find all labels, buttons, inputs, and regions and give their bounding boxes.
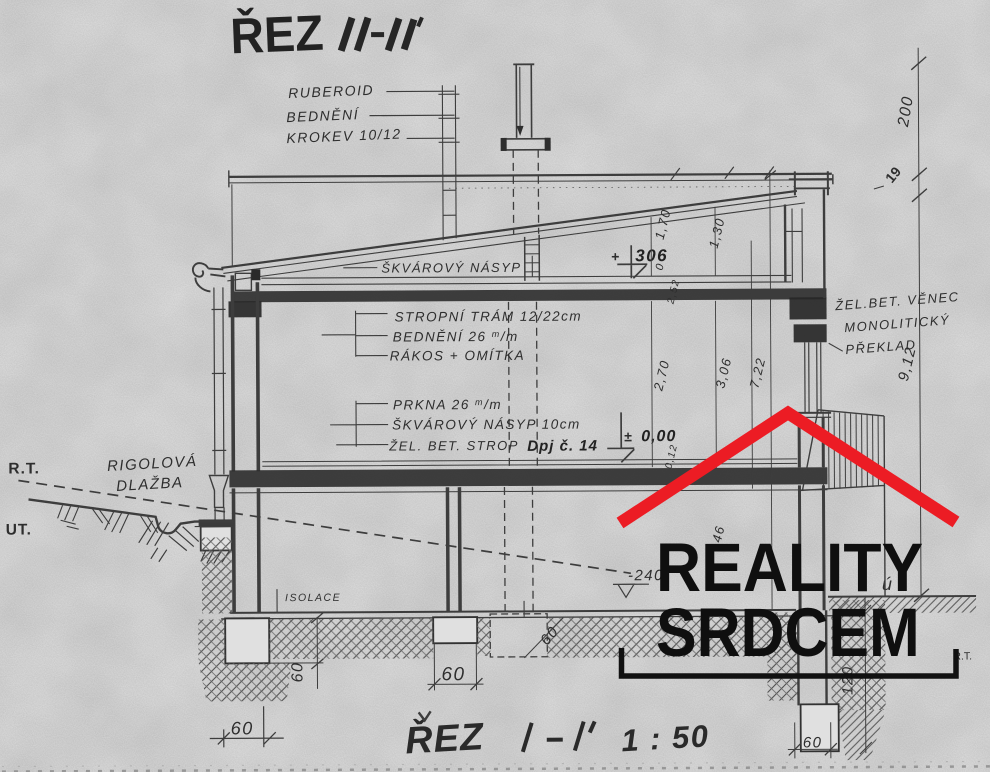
svg-text:ŠKVÁROVÝ NÁSYP: ŠKVÁROVÝ NÁSYP	[381, 260, 521, 276]
svg-text:ŘEZ: ŘEZ	[404, 714, 486, 763]
svg-text:60: 60	[231, 718, 254, 738]
svg-text:±: ±	[624, 428, 632, 444]
svg-text:60: 60	[289, 662, 306, 683]
svg-text:60: 60	[441, 664, 465, 685]
svg-text:STROPNÍ TRÁM 12/22cm: STROPNÍ TRÁM 12/22cm	[395, 309, 583, 325]
svg-text:+: +	[611, 248, 619, 264]
svg-text:Dpj č. 14: Dpj č. 14	[527, 437, 598, 454]
svg-text:ŠKVÁROVÝ NÁSYP 10cm: ŠKVÁROVÝ NÁSYP 10cm	[392, 417, 581, 433]
svg-text:1 : 50: 1 : 50	[620, 718, 710, 758]
svg-text:0,00: 0,00	[641, 428, 676, 445]
svg-text:R.T.: R.T.	[8, 460, 40, 477]
svg-text:ISOLACE: ISOLACE	[285, 592, 341, 604]
svg-text:UT.: UT.	[6, 521, 32, 538]
svg-text:RÁKOS + OMÍTKA: RÁKOS + OMÍTKA	[390, 348, 525, 364]
svg-text:BEDNĚNÍ 26 m/m: BEDNĚNÍ 26 m/m	[393, 329, 519, 345]
svg-text:PRKNA 26 m/m: PRKNA 26 m/m	[393, 397, 502, 413]
svg-text:BEDNĚNÍ: BEDNĚNÍ	[286, 106, 360, 125]
svg-text:ŽEL. BET. STROP: ŽEL. BET. STROP	[388, 438, 519, 454]
svg-text:SRDCEM: SRDCEM	[656, 593, 920, 670]
svg-text:60: 60	[803, 734, 823, 751]
svg-text:ŘEZ: ŘEZ	[229, 4, 324, 65]
